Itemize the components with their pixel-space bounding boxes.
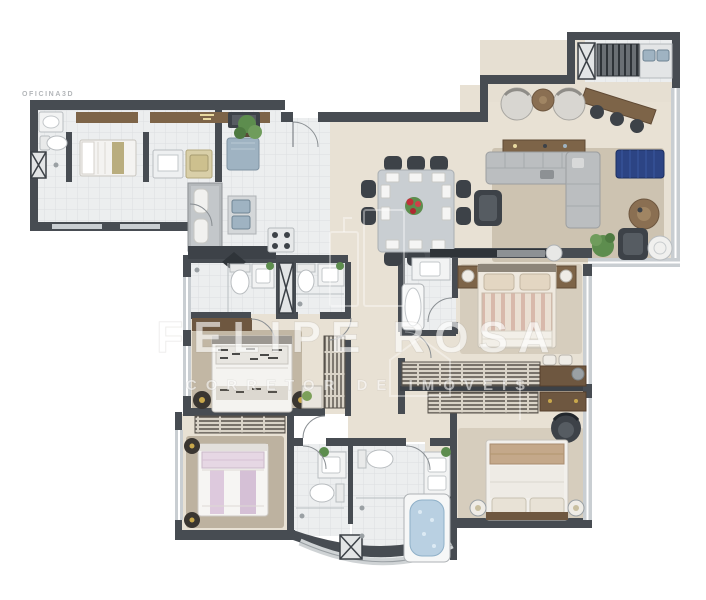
bed-2 [198, 444, 268, 516]
shower-head-3 [300, 514, 305, 519]
round-wood-pouf [629, 199, 659, 229]
living-right-window [671, 88, 680, 264]
grill [597, 44, 639, 76]
bath3-plant [319, 447, 329, 457]
sink-counter [228, 196, 256, 234]
toilet-1 [230, 264, 250, 294]
cooktop [268, 228, 294, 252]
reading-armchair [474, 190, 502, 226]
studio-logo: OFICINA3D [22, 91, 74, 98]
maid-single-bed [80, 140, 136, 176]
service-shower-head [54, 163, 59, 168]
blue-daybed [616, 150, 664, 178]
shaft-bathrooms [279, 263, 293, 313]
grill-counter [640, 44, 672, 78]
wood-dresser-3 [540, 392, 586, 411]
shaft-grill [578, 43, 595, 79]
bed-3 [486, 440, 568, 520]
toilet-2 [297, 264, 315, 292]
master-desk [540, 366, 586, 386]
lounge-armchair [618, 228, 648, 260]
shower-head-2 [298, 302, 303, 307]
watermark-subtitle: CORRETOR DE IMÓVEIS [186, 376, 534, 394]
toilet-master [358, 450, 393, 468]
service-toilet [40, 136, 67, 150]
jacuzzi-bathtub [404, 494, 450, 562]
vanity-3 [318, 447, 346, 478]
media-speaker [546, 245, 562, 261]
shaft-master-bath [340, 535, 362, 559]
round-coffee-table [532, 89, 554, 111]
bath1-plant [266, 262, 274, 270]
vanity-1 [252, 262, 274, 288]
floor-plan-canvas: FELIPE ROSA CORRETOR DE IMÓVEIS OFICINA3… [0, 0, 706, 600]
flower-centerpiece [405, 197, 423, 215]
bath2-plant [336, 262, 344, 270]
shower-head-1 [195, 268, 200, 273]
armchair-3 [551, 413, 581, 443]
toilet-3 [310, 484, 344, 502]
bedroom2-left-window [175, 430, 183, 520]
laundry-sink [153, 150, 183, 178]
wall-shelf-1 [76, 112, 138, 123]
service-sink [43, 116, 59, 128]
vanity-master [424, 447, 451, 496]
refrigerator [227, 138, 259, 170]
wardrobe-2 [195, 416, 285, 433]
master-bath-plant [441, 447, 451, 457]
round-side-table [648, 236, 672, 260]
ensuite-vanity [412, 258, 450, 280]
watermark-title: FELIPE ROSA [156, 313, 559, 362]
floor-plan-render: FELIPE ROSA CORRETOR DE IMÓVEIS OFICINA3… [0, 0, 706, 600]
washing-machine [186, 150, 212, 178]
shaft-service [31, 152, 46, 178]
wood-console [503, 140, 585, 152]
